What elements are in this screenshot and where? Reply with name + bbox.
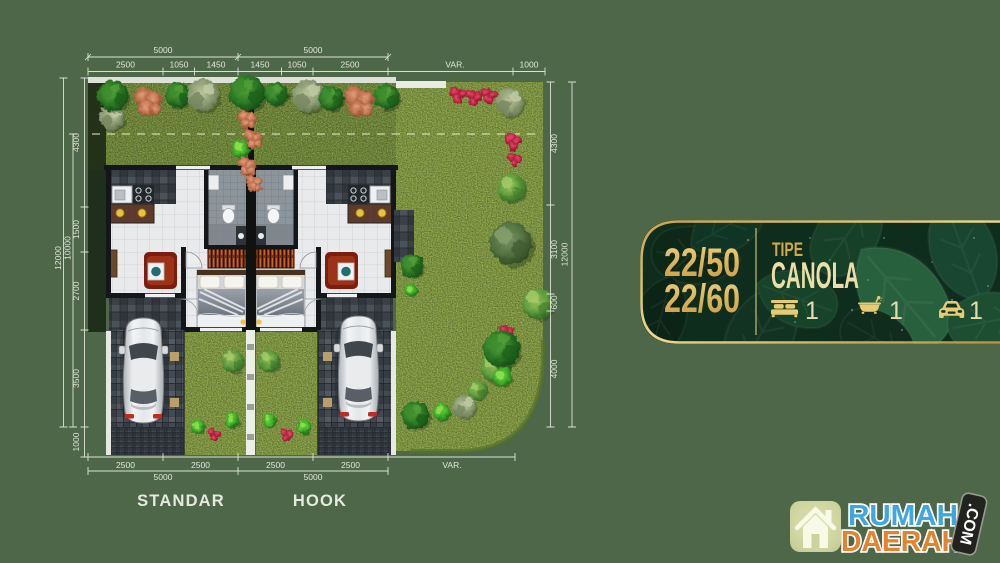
svg-text:1000: 1000 bbox=[71, 432, 81, 451]
svg-text:2500: 2500 bbox=[341, 460, 360, 470]
svg-text:22/60: 22/60 bbox=[664, 277, 740, 321]
svg-text:2700: 2700 bbox=[71, 281, 81, 300]
svg-text:CANOLA: CANOLA bbox=[771, 255, 859, 296]
svg-text:1: 1 bbox=[805, 297, 819, 325]
svg-text:1000: 1000 bbox=[520, 60, 539, 70]
svg-text:4300: 4300 bbox=[549, 134, 559, 153]
svg-text:4300: 4300 bbox=[71, 133, 81, 152]
svg-text:1450: 1450 bbox=[207, 60, 226, 70]
svg-text:5000: 5000 bbox=[154, 472, 173, 482]
svg-text:VAR.: VAR. bbox=[442, 460, 461, 470]
svg-text:1450: 1450 bbox=[251, 60, 270, 70]
svg-text:3100: 3100 bbox=[549, 240, 559, 259]
svg-text:2500: 2500 bbox=[116, 460, 135, 470]
svg-text:5000: 5000 bbox=[154, 45, 173, 55]
svg-text:1500: 1500 bbox=[71, 220, 81, 239]
svg-text:10000: 10000 bbox=[63, 236, 73, 260]
svg-text:12000: 12000 bbox=[560, 242, 570, 266]
svg-text:5000: 5000 bbox=[304, 472, 323, 482]
svg-text:1: 1 bbox=[889, 297, 903, 325]
svg-text:2500: 2500 bbox=[341, 60, 360, 70]
svg-text:3500: 3500 bbox=[71, 369, 81, 388]
svg-text:1050: 1050 bbox=[170, 60, 189, 70]
svg-text:VAR.: VAR. bbox=[445, 60, 464, 70]
svg-text:2500: 2500 bbox=[116, 60, 135, 70]
svg-text:2500: 2500 bbox=[191, 460, 210, 470]
svg-text:1: 1 bbox=[969, 297, 983, 325]
svg-text:4000: 4000 bbox=[549, 359, 559, 378]
svg-text:2500: 2500 bbox=[266, 460, 285, 470]
svg-text:DAERAH: DAERAH bbox=[841, 526, 962, 558]
svg-text:600: 600 bbox=[549, 295, 559, 309]
svg-text:5000: 5000 bbox=[304, 45, 323, 55]
svg-text:STANDAR: STANDAR bbox=[137, 492, 225, 510]
svg-text:12000: 12000 bbox=[53, 246, 63, 270]
svg-text:HOOK: HOOK bbox=[293, 492, 347, 510]
svg-text:1050: 1050 bbox=[288, 60, 307, 70]
